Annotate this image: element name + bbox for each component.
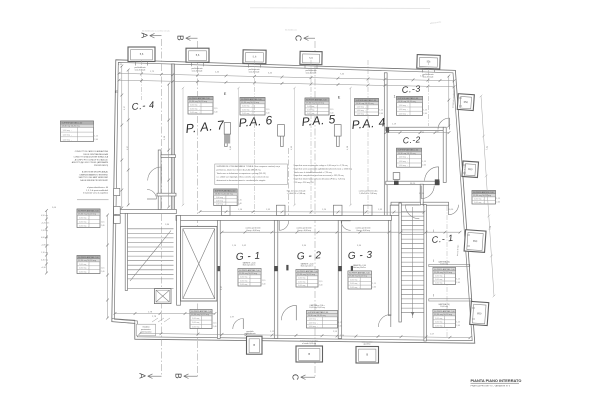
- svg-text:1,15: 1,15: [266, 109, 270, 111]
- svg-text:SUPERF.ABITAB.2,00: SUPERF.ABITAB.2,00: [434, 310, 455, 313]
- svg-text:+2,80 slm: +2,80 slm: [41, 245, 50, 247]
- svg-text:2,40: 2,40: [94, 139, 98, 141]
- svg-text:Giardino: Giardino: [142, 325, 149, 328]
- svg-text:2,40: 2,40: [379, 113, 383, 115]
- svg-text:1,00 mq -: 1,00 mq -: [309, 319, 319, 321]
- svg-text:1,10 mq: 1,10 mq: [41, 252, 48, 254]
- svg-text:2,40: 2,40: [423, 113, 427, 115]
- svg-text:5,6: 5,6: [253, 54, 257, 58]
- svg-text:2,40: 2,40: [456, 282, 460, 284]
- svg-text:Superficie area residenziale c: Superficie area residenziale colags n. 6…: [294, 165, 348, 167]
- svg-text:1,00 mq -: 1,00 mq -: [350, 287, 360, 289]
- svg-text:PIANTA PIANO INTERRATO: PIANTA PIANO INTERRATO: [471, 378, 522, 383]
- svg-text:+7,00x2,50 = 2,08 mq: +7,00x2,50 = 2,08 mq: [287, 193, 305, 195]
- svg-text:1,00 mq -: 1,00 mq -: [242, 109, 252, 111]
- svg-text:Superficie totale lorda surfac: Superficie totale lorda surfaces del pia…: [294, 178, 345, 181]
- svg-text:Superficie aree accessorie agi: Superficie aree accessorie agibili/pedon…: [294, 168, 352, 170]
- svg-text:1,00 mq -: 1,00 mq -: [435, 279, 445, 281]
- svg-text:PROSPICIENTI): PROSPICIENTI): [94, 165, 108, 167]
- svg-text:CONDOTTI DI ADDUZIONE IDRAULIC: CONDOTTI DI ADDUZIONE IDRAULICA: [74, 156, 109, 159]
- svg-text:1,00 mq -: 1,00 mq -: [350, 279, 360, 281]
- svg-text:sistemazione: sistemazione: [140, 331, 151, 334]
- svg-text:E: E: [224, 92, 227, 96]
- svg-text:SUPERF.ABITAB.2,00: SUPERF.ABITAB.2,00: [241, 98, 262, 101]
- svg-text:B: B: [176, 35, 186, 41]
- svg-text:I: I: [433, 294, 434, 298]
- svg-text:1,15: 1,15: [262, 280, 266, 282]
- svg-text:0,90 mq: 0,90 mq: [41, 215, 48, 217]
- svg-text:I: I: [433, 259, 434, 263]
- svg-text:1,15: 1,15: [456, 322, 460, 324]
- svg-text:2,40: 2,40: [214, 112, 218, 114]
- svg-text:1,00 mq -: 1,00 mq -: [435, 276, 445, 278]
- svg-text:Superficie complessiva (esclus: Superficie complessiva (escluso accessor…: [294, 175, 344, 177]
- svg-text:13,30 mq 50,20 mq: 13,30 mq 50,20 mq: [189, 101, 208, 103]
- svg-text:1, 3, 5 di spazi modificabili: 1, 3, 5 di spazi modificabili: [86, 190, 109, 192]
- svg-text:13,30 mq 50,20 mq: 13,30 mq 50,20 mq: [191, 314, 210, 316]
- svg-text:1,00 mq -: 1,00 mq -: [399, 157, 409, 159]
- svg-text:1,00 mq -: 1,00 mq -: [79, 268, 89, 270]
- svg-text:SUPERFICIE UTILE ABITABILE TOT: SUPERFICIE UTILE ABITABILE TOTALE (Sua c…: [217, 165, 281, 168]
- svg-text:ADDOTTI (A) LUSO / TELEF. (ARI: ADDOTTI (A) LUSO / TELEF. (ARICAVATE: [72, 161, 109, 164]
- svg-text:1,00 mq -: 1,00 mq -: [63, 139, 73, 141]
- svg-text:10,00 mq: 10,00 mq: [440, 306, 448, 308]
- svg-text:1,00 mq -: 1,00 mq -: [79, 226, 89, 228]
- svg-text:SUPERF.ABITAB.2,00: SUPERF.ABITAB.2,00: [308, 311, 329, 314]
- svg-text:al piano identificato n. 64: al piano identificato n. 64: [87, 186, 108, 189]
- svg-text:al verde 0,00 mq: al verde 0,00 mq: [302, 342, 316, 345]
- svg-text:G - 1: G - 1: [236, 251, 261, 263]
- svg-text:1,00 mq -: 1,00 mq -: [216, 197, 226, 199]
- svg-text:1: 1: [394, 95, 396, 99]
- svg-text:1,00 mq -: 1,00 mq -: [63, 130, 73, 132]
- svg-text:P.A. 6: P.A. 6: [238, 113, 273, 130]
- svg-text:13,30 mq 50,20 mq: 13,30 mq 50,20 mq: [356, 103, 375, 105]
- svg-text:13,30 mq 50,20 mq: 13,30 mq 50,20 mq: [349, 276, 368, 278]
- svg-text:13,30 mq 50,20 mq: 13,30 mq 50,20 mq: [78, 260, 97, 262]
- svg-text:il materiale verso la superfic: il materiale verso la superficie: [83, 192, 108, 195]
- svg-text:13,30 mq 50,20 mq: 13,30 mq 50,20 mq: [398, 153, 417, 155]
- svg-text:1,00 mq -: 1,00 mq -: [435, 326, 445, 328]
- svg-text:2,40: 2,40: [330, 113, 334, 115]
- svg-text:13,30 mq 50,20 mq: 13,30 mq 50,20 mq: [241, 102, 260, 104]
- svg-text:1,00 mq -: 1,00 mq -: [192, 318, 202, 320]
- svg-text:1,00 mq -: 1,00 mq -: [79, 264, 89, 266]
- svg-text:10,00 mq: 10,00 mq: [440, 264, 448, 266]
- svg-text:2,40: 2,40: [422, 165, 426, 167]
- svg-text:C.-2: C.-2: [402, 134, 421, 145]
- svg-text:1,00 mq -: 1,00 mq -: [307, 106, 317, 108]
- svg-text:1,00 mq -: 1,00 mq -: [190, 112, 200, 114]
- svg-text:1,00 mq -: 1,00 mq -: [298, 278, 308, 280]
- svg-text:1,00 mq -: 1,00 mq -: [242, 106, 252, 108]
- svg-text:SUPERF.ABITAB.2,00: SUPERF.ABITAB.2,00: [306, 98, 327, 101]
- svg-text:1,00 mq -: 1,00 mq -: [399, 165, 409, 167]
- svg-text:1,00 mq -: 1,00 mq -: [474, 202, 484, 204]
- svg-text:SUPERF.ABITAB.2,00: SUPERF.ABITAB.2,00: [78, 209, 99, 212]
- svg-text:2,40: 2,40: [338, 326, 342, 328]
- svg-text:2,40: 2,40: [372, 287, 376, 289]
- svg-text:1,00 mq -: 1,00 mq -: [298, 285, 308, 287]
- svg-text:1,00 mq -: 1,00 mq -: [216, 204, 226, 206]
- svg-text:1,15: 1,15: [101, 222, 105, 224]
- svg-text:SUPERF.ABITAB.2,00: SUPERF.ABITAB.2,00: [434, 268, 455, 271]
- svg-text:0,60 mq: 0,60 mq: [41, 237, 48, 239]
- svg-text:1,00 mq -: 1,00 mq -: [357, 107, 367, 109]
- svg-text:1,15: 1,15: [330, 109, 334, 111]
- svg-text:1,15: 1,15: [338, 322, 342, 324]
- svg-text:SUPERF.ABITAB.2,00: SUPERF.ABITAB.2,00: [62, 121, 83, 124]
- svg-text:G - 2: G - 2: [297, 250, 322, 262]
- svg-text:13,30 mq 50,20 mq: 13,30 mq 50,20 mq: [239, 273, 258, 275]
- svg-text:1,00 mq -: 1,00 mq -: [240, 277, 250, 279]
- svg-text:1,00 mq -: 1,00 mq -: [190, 108, 200, 110]
- svg-text:1,00 mq -: 1,00 mq -: [240, 280, 250, 282]
- svg-text:2,40: 2,40: [266, 113, 270, 115]
- svg-text:SUPERF.ABITAB.2,00: SUPERF.ABITAB.2,00: [239, 269, 260, 272]
- svg-text:Totale aree h abitabili/access: Totale aree h abitabili/accessibili = 7,…: [294, 171, 332, 174]
- svg-text:1,00 mq -: 1,00 mq -: [242, 113, 252, 115]
- svg-text:+3,20 slm: +3,20 slm: [41, 222, 50, 224]
- svg-text:giardino: giardino: [364, 343, 371, 346]
- svg-text:1,15: 1,15: [213, 323, 217, 325]
- svg-text:Bott.mq 10x3 m: Bott.mq 10x3 m: [301, 265, 314, 268]
- svg-text:2,40: 2,40: [319, 285, 323, 287]
- svg-text:10,00 mq 20,00 mq: 10,00 mq 20,00 mq: [309, 307, 324, 309]
- svg-text:pavimentaz.: pavimentaz.: [141, 328, 152, 331]
- svg-text:13,30 mq 50,20 mq: 13,30 mq 50,20 mq: [398, 101, 417, 103]
- svg-text:13,30 mq 50,20 mq: 13,30 mq 50,20 mq: [297, 274, 316, 276]
- svg-text:1,00 mq -: 1,00 mq -: [474, 199, 484, 201]
- svg-text:SUPERF.ABITAB.2,00: SUPERF.ABITAB.2,00: [398, 97, 419, 100]
- svg-text:A: A: [138, 373, 148, 379]
- svg-text:1,00 mq -: 1,00 mq -: [192, 326, 202, 328]
- svg-text:2,40: 2,40: [213, 326, 217, 328]
- svg-text:CONDOTTI DI CARICO E AREAZIONE: CONDOTTI DI CARICO E AREAZIONE: [75, 150, 109, 153]
- svg-text:A GESTIONE MODIFICATA AL: A GESTIONE MODIFICATA AL: [82, 171, 108, 174]
- svg-text:B: B: [308, 352, 310, 356]
- svg-text:5,6: 5,6: [309, 56, 313, 60]
- svg-text:13,30 mq 50,20 mq: 13,30 mq 50,20 mq: [473, 195, 492, 197]
- svg-text:C.-3: C.-3: [401, 83, 421, 95]
- svg-text:SUPERF.ABITAB.2,00: SUPERF.ABITAB.2,00: [191, 310, 212, 313]
- svg-text:1,15: 1,15: [379, 110, 383, 112]
- svg-text:1,15: 1,15: [423, 109, 427, 111]
- svg-text:1,00 mq -: 1,00 mq -: [399, 105, 409, 107]
- svg-text:PRATICA PROGETTO - VARIANTE N°: PRATICA PROGETTO - VARIANTE N° 3: [471, 384, 511, 387]
- svg-text:1,20 mq: 1,20 mq: [41, 230, 48, 232]
- svg-text:1,00 mq -: 1,00 mq -: [399, 113, 409, 115]
- svg-text:1,00 mq -: 1,00 mq -: [298, 281, 308, 283]
- svg-text:G mq = 0,00 mq: G mq = 0,00 mq: [297, 230, 311, 232]
- svg-text:2,40: 2,40: [101, 271, 105, 273]
- svg-text:DELLE CENTRALINE A GAS: DELLE CENTRALINE A GAS: [83, 153, 108, 156]
- svg-text:Totale area e definizione occu: Totale area e definizione occupazione e …: [217, 172, 267, 175]
- svg-text:13,30 mq 50,20 mq: 13,30 mq 50,20 mq: [215, 194, 234, 196]
- svg-text:1,15: 1,15: [101, 268, 105, 270]
- svg-text:B: B: [174, 373, 184, 379]
- svg-text:1,00 mq -: 1,00 mq -: [435, 322, 445, 324]
- svg-text:2,40: 2,40: [262, 284, 266, 286]
- svg-text:1,00 mq -: 1,00 mq -: [216, 200, 226, 202]
- svg-text:SUPERF.ABITAB.2,00: SUPERF.ABITAB.2,00: [473, 191, 494, 194]
- svg-text:C: C: [294, 35, 304, 41]
- svg-text:1,15: 1,15: [319, 281, 323, 283]
- svg-text:1,00 mq -: 1,00 mq -: [79, 272, 89, 274]
- svg-text:1,15: 1,15: [456, 279, 460, 281]
- svg-text:1,00 mq -: 1,00 mq -: [192, 322, 202, 324]
- svg-text:1,00 mq -: 1,00 mq -: [435, 318, 445, 320]
- svg-text:1,00 mq -: 1,00 mq -: [79, 222, 89, 224]
- svg-text:C: C: [291, 374, 301, 380]
- svg-text:1,00 mq -: 1,00 mq -: [190, 105, 200, 107]
- svg-text:DIMENSIONAMENTO ESTERNO: DIMENSIONAMENTO ESTERNO: [80, 173, 109, 176]
- svg-text:1,00 mq -: 1,00 mq -: [399, 161, 409, 163]
- svg-text:B: B: [366, 353, 368, 357]
- svg-text:filo fabbricato su confine str: filo fabbricato su confine strada: [142, 30, 171, 33]
- svg-text:A: A: [140, 33, 150, 39]
- svg-text:G mq = 0,00 mq: G mq = 0,00 mq: [356, 230, 370, 232]
- svg-text:1,00 mq -: 1,00 mq -: [307, 113, 317, 115]
- svg-text:1,15: 1,15: [496, 198, 500, 200]
- svg-text:SUPERF.ABITAB.2,00: SUPERF.ABITAB.2,00: [349, 271, 370, 274]
- svg-text:5,6: 5,6: [196, 53, 200, 57]
- svg-text:1,00 mq -: 1,00 mq -: [240, 284, 250, 286]
- svg-text:B: B: [253, 343, 255, 347]
- svg-text:E: E: [338, 96, 341, 100]
- svg-text:13,30 mq 50,20 mq: 13,30 mq 50,20 mq: [434, 314, 453, 316]
- svg-text:1,00 mq -: 1,00 mq -: [350, 283, 360, 285]
- svg-text:SUPERF.ABITAB.2,00: SUPERF.ABITAB.2,00: [189, 97, 210, 100]
- svg-text:1,15: 1,15: [422, 161, 426, 163]
- svg-text:1,15: 1,15: [94, 136, 98, 138]
- svg-text:1,00 mq -: 1,00 mq -: [357, 114, 367, 116]
- svg-text:SUPERF.ABITAB.2,00: SUPERF.ABITAB.2,00: [78, 256, 99, 259]
- svg-text:1,00 mq -: 1,00 mq -: [79, 217, 89, 219]
- svg-text:1,15: 1,15: [372, 283, 376, 285]
- svg-text:90,10: 90,10: [419, 193, 425, 195]
- svg-text:determinati e dimensionamenti: determinati e dimensionamenti e caratter…: [217, 179, 267, 182]
- svg-text:13,30 mq 50,20 mq: 13,30 mq 50,20 mq: [306, 103, 325, 105]
- svg-text:vista frontale: vista frontale: [135, 69, 146, 72]
- svg-text:Bott.mq 10x3 m: Bott.mq 10x3 m: [353, 266, 366, 269]
- svg-text:1,00 mq -: 1,00 mq -: [357, 110, 367, 112]
- svg-text:13,30 mq 50,20 mq: 13,30 mq 50,20 mq: [78, 214, 97, 216]
- svg-text:SUPERF.ABITAB.2,00: SUPERF.ABITAB.2,00: [356, 99, 377, 102]
- svg-text:SUPERF.ABITAB.2,00: SUPERF.ABITAB.2,00: [398, 149, 419, 152]
- svg-text:98,10: 98,10: [410, 183, 416, 185]
- svg-text:i.e. ambiti vani ripostigli, i: i.e. ambiti vani ripostigli, infissi, co…: [217, 175, 270, 178]
- svg-text:vista frontale: vista frontale: [423, 75, 434, 78]
- svg-text:90,10: 90,10: [448, 209, 454, 211]
- svg-text:2,40: 2,40: [496, 202, 500, 204]
- svg-text:1,15: 1,15: [214, 108, 218, 110]
- svg-text:SMOTTICO DEI MATI VERIFICATI: SMOTTICO DEI MATI VERIFICATI: [79, 176, 109, 179]
- svg-text:DALLE MISURE PROSPICIENTI: DALLE MISURE PROSPICIENTI: [80, 179, 108, 182]
- svg-text:vista frontale: vista frontale: [249, 71, 260, 74]
- svg-text:filo fabbricato: filo fabbricato: [285, 29, 298, 32]
- svg-text:1,00 mq -: 1,00 mq -: [63, 135, 73, 137]
- svg-text:A CORPO PTO CONDOTTI DI ADDUZ.: A CORPO PTO CONDOTTI DI ADDUZ.: [75, 158, 109, 161]
- svg-text:SUPERF.ABITAB.2,00: SUPERF.ABITAB.2,00: [297, 270, 318, 273]
- svg-text:1,00 mq -: 1,00 mq -: [399, 109, 409, 111]
- svg-text:13,30 mq 50,20 mq: 13,30 mq 50,20 mq: [434, 272, 453, 274]
- svg-text:5,6: 5,6: [140, 52, 144, 56]
- svg-text:1,00 mq -: 1,00 mq -: [307, 110, 317, 112]
- svg-text:1,00 mq -: 1,00 mq -: [309, 322, 319, 324]
- svg-text:vista frontale: vista frontale: [192, 70, 203, 73]
- svg-text:1,00 mq -: 1,00 mq -: [309, 326, 319, 328]
- svg-text:G mq = 0,00 mq: G mq = 0,00 mq: [246, 230, 260, 232]
- svg-text:G - 3: G - 3: [348, 250, 373, 262]
- svg-text:13,30 mq 50,20 mq: 13,30 mq 50,20 mq: [62, 126, 81, 128]
- svg-text:0,45 mq: 0,45 mq: [41, 259, 48, 261]
- svg-text:1,00 mq -: 1,00 mq -: [435, 283, 445, 285]
- svg-text:7,26 mq = 216 mq 216: 7,26 mq = 216 mq 216: [294, 182, 315, 184]
- svg-text:SUPERF.ABITAB.2,00: SUPERF.ABITAB.2,00: [215, 189, 236, 192]
- svg-text:Bott.mq 10x3 m: Bott.mq 10x3 m: [243, 264, 256, 267]
- svg-text:2,40: 2,40: [456, 325, 460, 327]
- svg-text:13,30 mq 50,20 mq: 13,30 mq 50,20 mq: [308, 315, 327, 317]
- svg-text:2,40: 2,40: [101, 225, 105, 227]
- svg-text:P.A. 4: P.A. 4: [351, 115, 386, 132]
- svg-text:+0,30: +0,30: [41, 267, 46, 269]
